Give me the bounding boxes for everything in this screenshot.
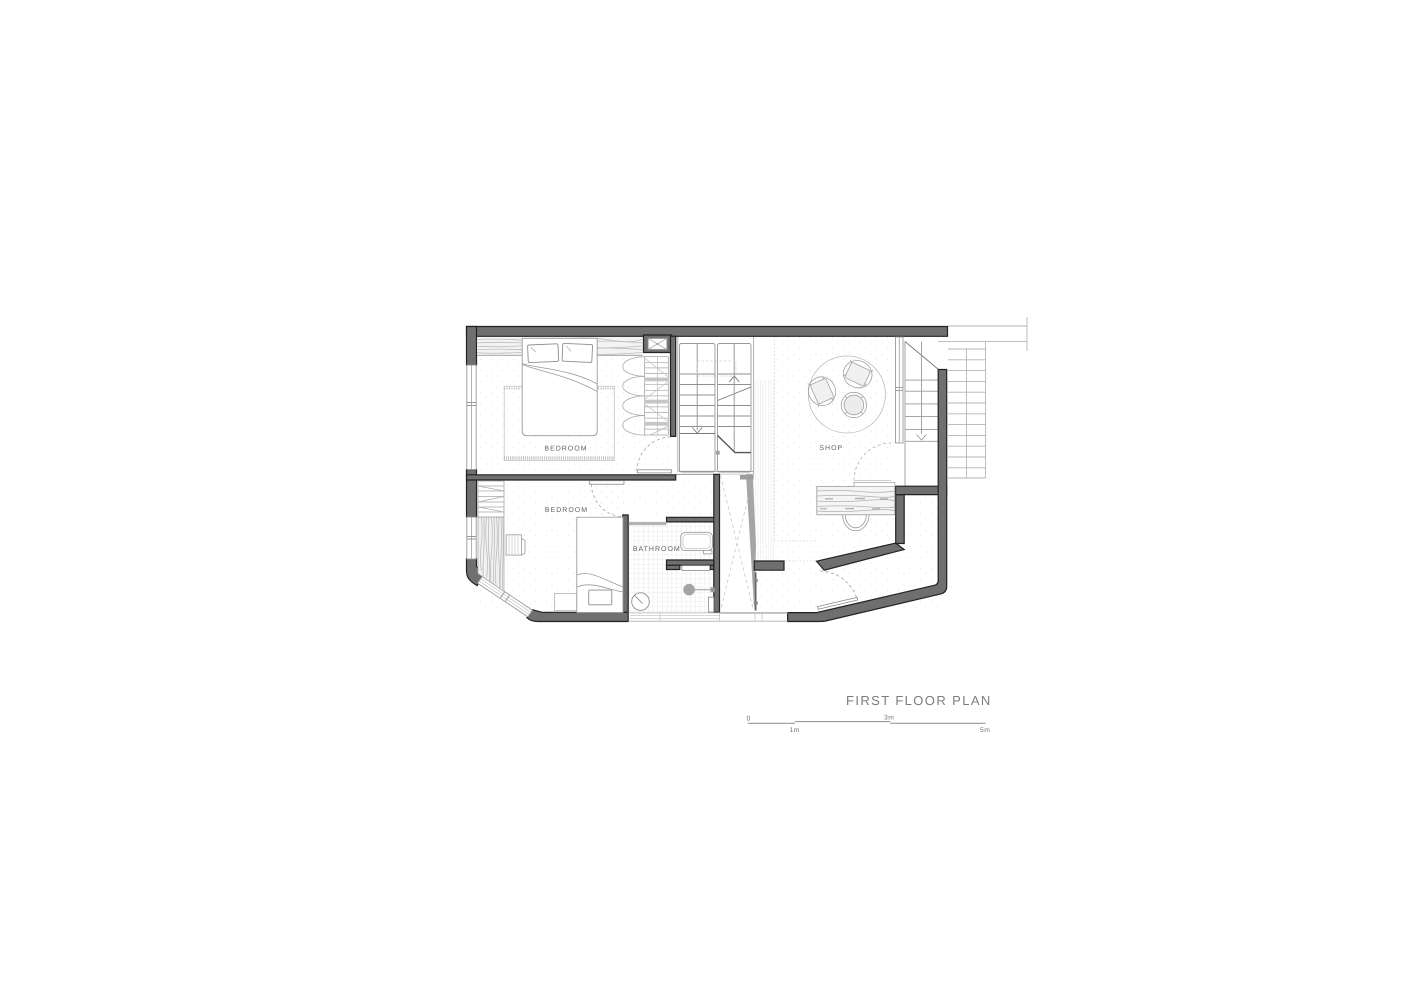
svg-text:BEDROOM: BEDROOM xyxy=(545,507,588,514)
svg-text:BEDROOM: BEDROOM xyxy=(544,446,587,453)
svg-text:BATHROOM: BATHROOM xyxy=(633,546,681,553)
svg-text:5m: 5m xyxy=(980,727,990,734)
svg-text:FIRST FLOOR PLAN: FIRST FLOOR PLAN xyxy=(846,693,992,708)
svg-text:3m: 3m xyxy=(884,715,894,722)
svg-text:1m: 1m xyxy=(790,727,800,734)
svg-text:0: 0 xyxy=(747,715,751,722)
svg-text:SHOP: SHOP xyxy=(819,445,843,452)
